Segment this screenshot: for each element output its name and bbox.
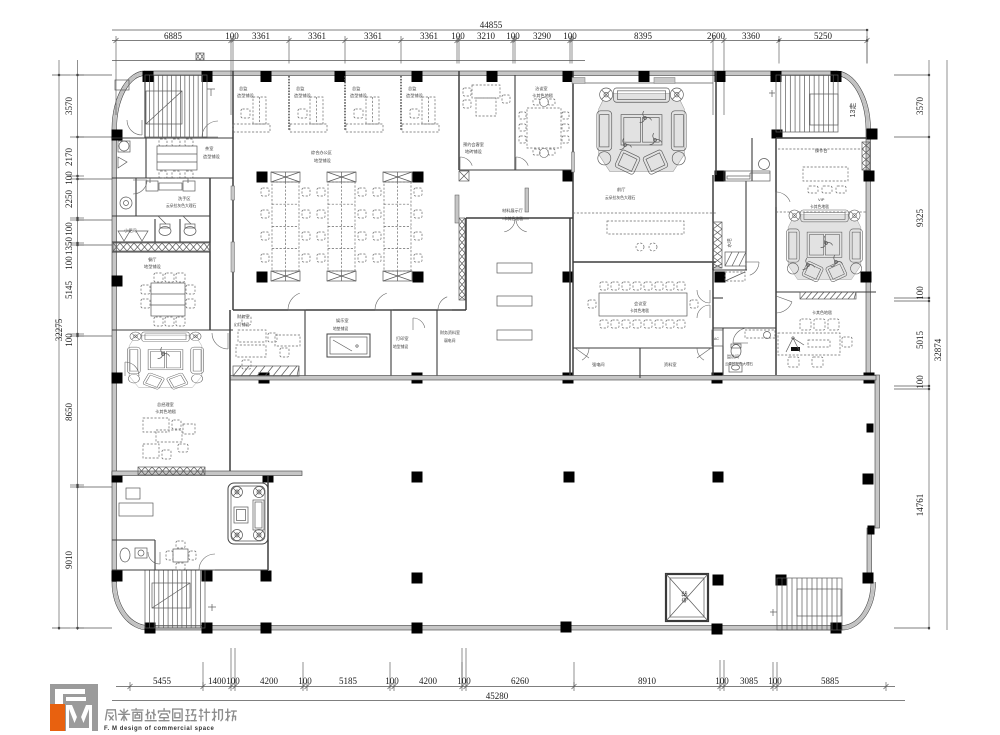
svg-text:6260: 6260 bbox=[511, 676, 530, 686]
svg-text:卡其色地毯: 卡其色地毯 bbox=[812, 309, 832, 315]
svg-text:100: 100 bbox=[563, 31, 577, 41]
svg-text:100: 100 bbox=[226, 676, 240, 686]
svg-text:地型铺设: 地型铺设 bbox=[314, 157, 332, 164]
svg-text:45280: 45280 bbox=[486, 691, 509, 701]
svg-text:卡其色地毯: 卡其色地毯 bbox=[155, 408, 177, 415]
svg-text:造型铺设: 造型铺设 bbox=[350, 92, 368, 99]
svg-text:VIP: VIP bbox=[818, 197, 825, 202]
svg-text:5455: 5455 bbox=[153, 676, 172, 686]
svg-text:5885: 5885 bbox=[821, 676, 840, 686]
svg-text:4200: 4200 bbox=[419, 676, 438, 686]
svg-text:2600: 2600 bbox=[707, 31, 726, 41]
svg-text:3085: 3085 bbox=[740, 676, 759, 686]
svg-text:打印室: 打印室 bbox=[396, 335, 409, 342]
svg-text:造型铺设: 造型铺设 bbox=[237, 92, 255, 99]
svg-text:100: 100 bbox=[64, 256, 74, 270]
svg-text:32275: 32275 bbox=[54, 318, 64, 341]
svg-text:3570: 3570 bbox=[915, 97, 925, 116]
svg-text:6885: 6885 bbox=[164, 31, 183, 41]
svg-text:100: 100 bbox=[768, 676, 782, 686]
svg-text:100: 100 bbox=[64, 222, 74, 236]
svg-text:电梯: 电梯 bbox=[681, 591, 689, 603]
svg-text:2250: 2250 bbox=[64, 190, 74, 209]
svg-text:3210: 3210 bbox=[477, 31, 496, 41]
svg-text:3361: 3361 bbox=[308, 31, 326, 41]
svg-text:造型铺设: 造型铺设 bbox=[203, 153, 221, 160]
svg-text:综合办公区: 综合办公区 bbox=[311, 149, 332, 156]
svg-text:总经理室: 总经理室 bbox=[157, 401, 174, 407]
svg-text:1400: 1400 bbox=[208, 676, 227, 686]
svg-text:100: 100 bbox=[225, 31, 239, 41]
svg-text:9010: 9010 bbox=[64, 551, 74, 570]
svg-text:茶室: 茶室 bbox=[205, 145, 213, 151]
svg-text:前厅: 前厅 bbox=[617, 186, 625, 193]
svg-text:卡其色地毯: 卡其色地毯 bbox=[504, 216, 523, 221]
svg-text:3290: 3290 bbox=[533, 31, 552, 41]
svg-text:弱电间: 弱电间 bbox=[444, 338, 456, 343]
svg-text:预约会客室: 预约会客室 bbox=[463, 141, 484, 148]
svg-text:总监: 总监 bbox=[352, 85, 360, 91]
svg-text:地垫铺设: 地垫铺设 bbox=[333, 326, 348, 331]
svg-text:总监: 总监 bbox=[408, 85, 416, 91]
svg-text:4200: 4200 bbox=[260, 676, 279, 686]
svg-text:8395: 8395 bbox=[634, 31, 653, 41]
svg-text:洗手区: 洗手区 bbox=[178, 195, 191, 202]
svg-text:地砖铺设: 地砖铺设 bbox=[465, 148, 483, 155]
svg-text:水吧: 水吧 bbox=[726, 238, 732, 247]
svg-text:幻灯铺设: 幻灯铺设 bbox=[234, 322, 249, 327]
svg-text:资料室: 资料室 bbox=[664, 361, 677, 368]
svg-text:卡其色地毯: 卡其色地毯 bbox=[630, 308, 649, 313]
svg-text:13走: 13走 bbox=[849, 103, 857, 118]
svg-text:5015: 5015 bbox=[915, 331, 925, 350]
svg-text:强电间: 强电间 bbox=[592, 361, 605, 368]
svg-text:3361: 3361 bbox=[364, 31, 382, 41]
svg-text:8910: 8910 bbox=[638, 676, 657, 686]
svg-text:100: 100 bbox=[451, 31, 465, 41]
svg-text:100: 100 bbox=[385, 676, 399, 686]
svg-text:100: 100 bbox=[715, 676, 729, 686]
svg-text:操作台: 操作台 bbox=[815, 147, 828, 154]
svg-text:3360: 3360 bbox=[742, 31, 761, 41]
svg-text:财务资料室: 财务资料室 bbox=[440, 329, 460, 335]
svg-text:云朵拉灰色大理石: 云朵拉灰色大理石 bbox=[605, 195, 636, 200]
svg-text:卡其色地毯: 卡其色地毯 bbox=[810, 204, 829, 209]
svg-text:AC: AC bbox=[714, 337, 719, 341]
svg-text:1350: 1350 bbox=[64, 237, 74, 256]
svg-text:5185: 5185 bbox=[339, 676, 358, 686]
svg-text:100: 100 bbox=[506, 31, 520, 41]
svg-text:3361: 3361 bbox=[252, 31, 270, 41]
svg-text:100: 100 bbox=[64, 171, 74, 185]
svg-text:100: 100 bbox=[64, 333, 74, 347]
svg-text:8650: 8650 bbox=[64, 403, 74, 422]
svg-text:44855: 44855 bbox=[480, 20, 503, 30]
svg-text:餐厅: 餐厅 bbox=[148, 256, 156, 263]
svg-text:总监: 总监 bbox=[239, 85, 247, 91]
svg-text:100: 100 bbox=[457, 676, 471, 686]
svg-text:云朵拉灰色大理石: 云朵拉灰色大理石 bbox=[166, 203, 197, 208]
svg-text:总监: 总监 bbox=[296, 85, 304, 91]
svg-text:9325: 9325 bbox=[915, 209, 925, 228]
svg-text:造型铺设: 造型铺设 bbox=[294, 92, 312, 99]
svg-text:F. M design of commercial spac: F. M design of commercial space bbox=[104, 726, 215, 732]
svg-text:财务室: 财务室 bbox=[237, 313, 250, 320]
svg-text:100: 100 bbox=[915, 375, 925, 389]
svg-text:小便间: 小便间 bbox=[124, 227, 137, 234]
svg-text:100: 100 bbox=[915, 286, 925, 300]
svg-text:3361: 3361 bbox=[420, 31, 438, 41]
svg-text:100: 100 bbox=[298, 676, 312, 686]
svg-text:14761: 14761 bbox=[915, 494, 925, 517]
svg-text:地型铺设: 地型铺设 bbox=[144, 263, 162, 270]
svg-text:地型铺设: 地型铺设 bbox=[393, 344, 408, 349]
svg-text:洽谈室: 洽谈室 bbox=[535, 85, 548, 92]
svg-text:卡其色地毯: 卡其色地毯 bbox=[532, 92, 554, 99]
svg-text:5145: 5145 bbox=[64, 281, 74, 300]
svg-text:会议室: 会议室 bbox=[634, 300, 647, 307]
svg-text:造型铺设: 造型铺设 bbox=[406, 92, 424, 99]
svg-text:材料展示厅: 材料展示厅 bbox=[502, 207, 523, 214]
svg-text:5250: 5250 bbox=[814, 31, 833, 41]
svg-text:娱乐室: 娱乐室 bbox=[336, 317, 349, 324]
svg-text:32874: 32874 bbox=[933, 338, 943, 361]
svg-text:3570: 3570 bbox=[64, 97, 74, 116]
svg-text:2170: 2170 bbox=[64, 148, 74, 167]
